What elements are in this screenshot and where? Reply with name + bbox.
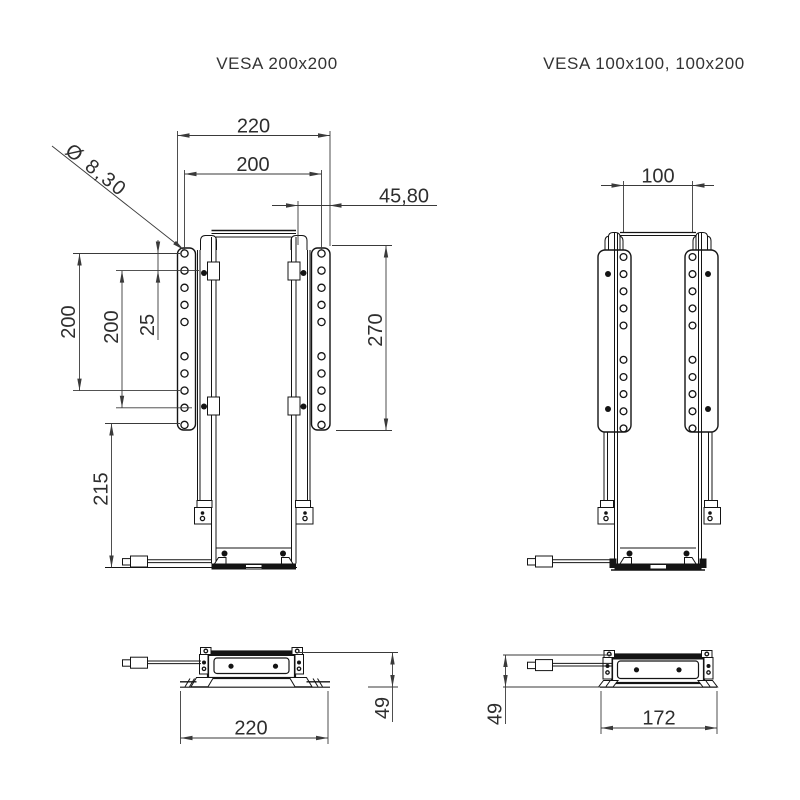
vesa-hole — [318, 284, 325, 291]
vesa100-extension-lines — [624, 181, 693, 232]
vesa-hole — [689, 322, 696, 329]
view-title-vesa100: VESA 100x100, 100x200 — [543, 54, 745, 73]
side-view-vesa200: 220 49 — [123, 648, 399, 745]
vesa200-body — [105, 231, 330, 570]
vesa-hole — [181, 284, 188, 291]
vesa-hole — [620, 356, 627, 363]
side200-body — [123, 648, 331, 688]
vesa-hole — [689, 305, 696, 312]
vesa-hole — [318, 250, 325, 257]
dim-label-100: 100 — [641, 166, 674, 188]
vesa-hole — [689, 408, 696, 415]
vesa-hole — [181, 353, 188, 360]
front-view-vesa100: VESA 100x100, 100x200 — [528, 54, 745, 570]
dim-label-25: 25 — [137, 314, 159, 336]
vesa-hole — [620, 305, 627, 312]
cable-plug — [123, 559, 131, 565]
vesa-hole — [318, 318, 325, 325]
vesa-hole — [318, 353, 325, 360]
dim-label-45-80: 45,80 — [379, 186, 429, 208]
dim-label-200-v2: 200 — [101, 310, 123, 343]
side100-body — [528, 651, 718, 688]
vesa-hole — [620, 254, 627, 261]
dim-label-220: 220 — [237, 116, 270, 138]
dim-label-49-right: 49 — [485, 703, 507, 725]
vesa-hole — [318, 301, 325, 308]
vesa-hole — [181, 318, 188, 325]
vesa-hole — [620, 288, 627, 295]
dim-label-200: 200 — [236, 154, 269, 176]
leader-hole-diameter: Ø 8,30 — [52, 140, 184, 250]
front-view-vesa200: VESA 200x200 — [52, 54, 437, 570]
vesa-hole — [620, 271, 627, 278]
vesa-hole — [689, 254, 696, 261]
vesa-hole — [620, 408, 627, 415]
dim-label-hole-dia: Ø 8,30 — [61, 140, 131, 202]
vesa-hole — [318, 404, 325, 411]
vesa-hole — [689, 425, 696, 432]
vesa-hole — [620, 322, 627, 329]
vesa100-body — [528, 233, 721, 571]
dim-label-270: 270 — [365, 313, 387, 346]
vesa-hole — [181, 421, 188, 428]
vesa-hole — [689, 374, 696, 381]
vesa-hole — [318, 267, 325, 274]
vesa-hole — [689, 356, 696, 363]
technical-drawing-canvas: VESA 200x200 — [0, 0, 800, 800]
cable-plug — [528, 559, 536, 565]
dim-label-215: 215 — [91, 472, 113, 505]
vesa-hole — [181, 301, 188, 308]
vesa-hole — [620, 391, 627, 398]
vesa-hole — [318, 421, 325, 428]
dim-label-side-220: 220 — [234, 718, 267, 740]
vesa-hole — [318, 370, 325, 377]
cable-plug — [528, 662, 536, 668]
vesa-hole — [689, 391, 696, 398]
vesa-hole — [620, 374, 627, 381]
cable-plug — [123, 660, 131, 666]
vesa-hole — [620, 425, 627, 432]
vesa-hole — [318, 387, 325, 394]
view-title-vesa200: VESA 200x200 — [216, 54, 338, 73]
vesa-hole — [181, 387, 188, 394]
dim-label-49-left: 49 — [372, 697, 394, 719]
drawing-page: VESA 200x200 — [0, 0, 800, 800]
vesa-hole — [689, 288, 696, 295]
side-view-vesa100: 49 172 — [485, 651, 718, 735]
dim-label-172: 172 — [642, 708, 675, 730]
vesa-hole — [181, 370, 188, 377]
dim-label-200-v1: 200 — [58, 305, 80, 338]
vesa-hole — [181, 250, 188, 257]
vesa-hole — [689, 271, 696, 278]
